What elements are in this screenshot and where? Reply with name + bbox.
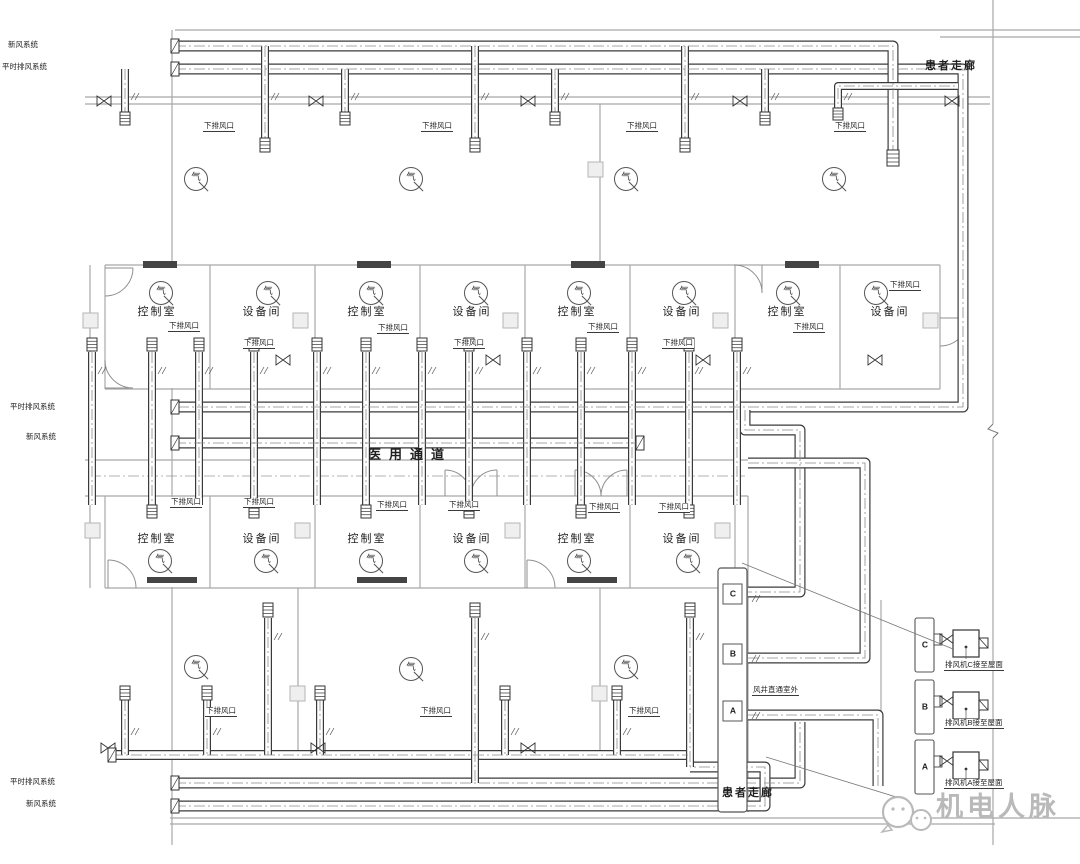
riser-letter: B bbox=[730, 649, 736, 658]
vent-outlet-label: 下排风口 bbox=[793, 323, 825, 333]
shaft-note: 风井直通室外 bbox=[752, 686, 799, 696]
fan-letter: A bbox=[922, 762, 928, 771]
vent-outlet-label: 下排风口 bbox=[453, 339, 485, 349]
gas-symbol: 气 bbox=[464, 281, 488, 305]
watermark-text: 机电人脉 bbox=[936, 793, 1060, 823]
gas-symbol-char: 气 bbox=[155, 554, 165, 565]
system-label: 新风系统 bbox=[8, 41, 38, 49]
gas-symbol-char: 气 bbox=[156, 286, 166, 297]
vent-outlet-label: 下排风口 bbox=[628, 707, 660, 717]
room-label: 设备间 bbox=[453, 533, 492, 545]
gas-symbol-char: 气 bbox=[406, 172, 416, 183]
room-label: 控制室 bbox=[348, 306, 387, 318]
gas-symbol-char: 气 bbox=[191, 172, 201, 183]
gas-symbol: 气 bbox=[614, 655, 638, 679]
fan-letter: B bbox=[922, 702, 928, 711]
fan-note: 排风机B接至屋面 bbox=[944, 719, 1004, 729]
hvac-floor-plan: 新风系统平时排风系统平时排风系统新风系统平时排风系统新风系统患者走廊患者走廊医用… bbox=[0, 0, 1080, 864]
gas-symbol-char: 气 bbox=[574, 554, 584, 565]
gas-symbol-char: 气 bbox=[263, 286, 273, 297]
room-label: 控制室 bbox=[768, 306, 807, 318]
gas-symbol: 气 bbox=[822, 167, 846, 191]
vent-outlet-label: 下排风口 bbox=[448, 501, 480, 511]
gas-symbol: 气 bbox=[776, 281, 800, 305]
vent-outlet-label: 下排风口 bbox=[626, 122, 658, 132]
room-label: 设备间 bbox=[243, 533, 282, 545]
gas-symbol-char: 气 bbox=[406, 662, 416, 673]
gas-symbol: 气 bbox=[256, 281, 280, 305]
gas-symbol: 气 bbox=[184, 167, 208, 191]
system-label: 新风系统 bbox=[26, 800, 56, 808]
gas-symbol: 气 bbox=[148, 549, 172, 573]
gas-symbol-char: 气 bbox=[829, 172, 839, 183]
room-label: 设备间 bbox=[663, 533, 702, 545]
gas-symbol: 气 bbox=[676, 549, 700, 573]
vent-outlet-label: 下排风口 bbox=[662, 339, 694, 349]
vent-outlet-label: 下排风口 bbox=[243, 339, 275, 349]
gas-symbol-char: 气 bbox=[783, 286, 793, 297]
corridor-label: 患者走廊 bbox=[925, 60, 977, 72]
room-label: 控制室 bbox=[138, 533, 177, 545]
room-label: 控制室 bbox=[348, 533, 387, 545]
gas-symbol: 气 bbox=[359, 281, 383, 305]
fan-letter: C bbox=[922, 640, 928, 649]
fan-note: 排风机A接至屋面 bbox=[944, 779, 1004, 789]
room-label: 设备间 bbox=[243, 306, 282, 318]
gas-symbol-char: 气 bbox=[679, 286, 689, 297]
vent-outlet-label: 下排风口 bbox=[170, 498, 202, 508]
gas-symbol-char: 气 bbox=[683, 554, 693, 565]
gas-symbol-char: 气 bbox=[261, 554, 271, 565]
vent-outlet-label: 下排风口 bbox=[587, 323, 619, 333]
gas-symbol-char: 气 bbox=[574, 286, 584, 297]
system-label: 平时排风系统 bbox=[10, 403, 55, 411]
gas-symbol: 气 bbox=[672, 281, 696, 305]
vent-outlet-label: 下排风口 bbox=[168, 322, 200, 332]
gas-symbol: 气 bbox=[359, 549, 383, 573]
room-label: 控制室 bbox=[138, 306, 177, 318]
vent-outlet-label: 下排风口 bbox=[420, 707, 452, 717]
vent-outlet-label: 下排风口 bbox=[205, 707, 237, 717]
gas-symbol: 气 bbox=[464, 549, 488, 573]
gas-symbol: 气 bbox=[399, 657, 423, 681]
gas-symbol: 气 bbox=[254, 549, 278, 573]
fan-note: 排风机C接至屋面 bbox=[944, 661, 1004, 671]
room-label: 设备间 bbox=[663, 306, 702, 318]
system-label: 新风系统 bbox=[26, 433, 56, 441]
gas-symbol: 气 bbox=[567, 281, 591, 305]
room-label: 控制室 bbox=[558, 533, 597, 545]
vent-outlet-label: 下排风口 bbox=[376, 501, 408, 511]
vent-outlet-label: 下排风口 bbox=[658, 503, 690, 513]
room-label: 控制室 bbox=[558, 306, 597, 318]
gas-symbol: 气 bbox=[184, 655, 208, 679]
room-label: 设备间 bbox=[453, 306, 492, 318]
vent-outlet-label: 下排风口 bbox=[889, 281, 921, 291]
gas-symbol: 气 bbox=[399, 167, 423, 191]
gas-symbol: 气 bbox=[864, 281, 888, 305]
gas-symbol-char: 气 bbox=[366, 286, 376, 297]
system-label: 平时排风系统 bbox=[2, 63, 47, 71]
vent-outlet-label: 下排风口 bbox=[834, 122, 866, 132]
gas-symbol-char: 气 bbox=[191, 660, 201, 671]
gas-symbol-char: 气 bbox=[471, 286, 481, 297]
vent-outlet-label: 下排风口 bbox=[588, 503, 620, 513]
gas-symbol: 气 bbox=[149, 281, 173, 305]
gas-symbol-char: 气 bbox=[621, 660, 631, 671]
text-labels-layer: 新风系统平时排风系统平时排风系统新风系统平时排风系统新风系统患者走廊患者走廊医用… bbox=[0, 0, 1080, 864]
vent-outlet-label: 下排风口 bbox=[203, 122, 235, 132]
gas-symbol: 气 bbox=[614, 167, 638, 191]
vent-outlet-label: 下排风口 bbox=[377, 324, 409, 334]
gas-symbol-char: 气 bbox=[871, 286, 881, 297]
room-label: 设备间 bbox=[871, 306, 910, 318]
riser-letter: A bbox=[730, 706, 736, 715]
gas-symbol: 气 bbox=[567, 549, 591, 573]
corridor-label: 医用通道 bbox=[368, 448, 452, 462]
system-label: 平时排风系统 bbox=[10, 778, 55, 786]
vent-outlet-label: 下排风口 bbox=[421, 122, 453, 132]
riser-letter: C bbox=[730, 589, 736, 598]
gas-symbol-char: 气 bbox=[621, 172, 631, 183]
vent-outlet-label: 下排风口 bbox=[243, 498, 275, 508]
gas-symbol-char: 气 bbox=[471, 554, 481, 565]
gas-symbol-char: 气 bbox=[366, 554, 376, 565]
corridor-label: 患者走廊 bbox=[722, 787, 774, 799]
